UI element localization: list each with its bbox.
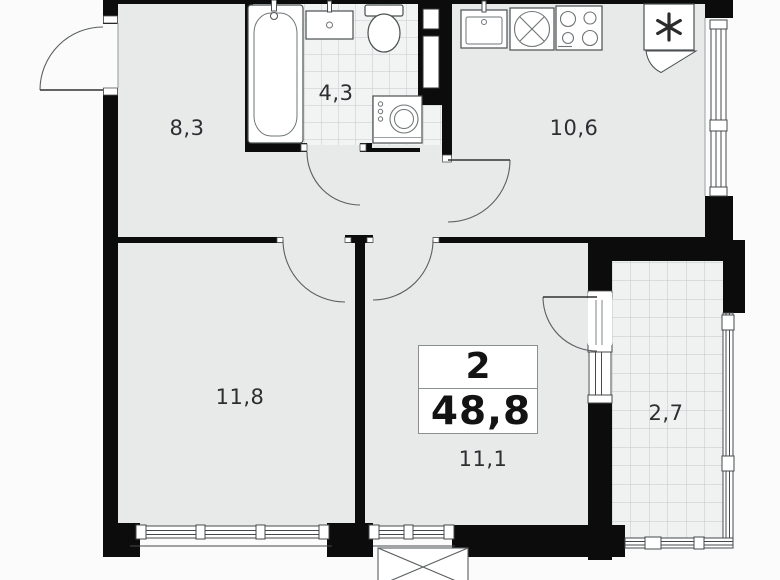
- stove: [556, 6, 602, 50]
- room-area-label-bathroom: 4,3: [319, 81, 354, 105]
- total-area: 48,8: [419, 389, 537, 433]
- entrance-door: [40, 27, 103, 90]
- floor-plan-drawing: [0, 0, 780, 580]
- ac-unit: [378, 548, 468, 580]
- vent-shaft: [423, 9, 439, 88]
- room-area-label-balcony: 2,7: [649, 401, 684, 425]
- window-balcony-divider: [588, 344, 612, 403]
- washing-machine: [373, 96, 422, 143]
- window-room-left: [130, 525, 332, 546]
- floor-plan: 8,3 4,3 10,6 11,8 11,1 2,7 2 48,8: [0, 0, 780, 580]
- room-count: 2: [419, 346, 537, 389]
- hob: [510, 8, 554, 50]
- room-area-label-room-right: 11,1: [459, 447, 508, 471]
- balcony-floor-tiles: [612, 260, 723, 538]
- room-area-label-hall: 8,3: [170, 116, 205, 140]
- room-area-label-kitchen: 10,6: [550, 116, 599, 140]
- window-room-right: [369, 525, 455, 546]
- room-area-label-room-left: 11,8: [216, 385, 265, 409]
- bathtub: [248, 0, 303, 143]
- window-kitchen: [705, 18, 727, 196]
- summary-box: 2 48,8: [418, 345, 538, 434]
